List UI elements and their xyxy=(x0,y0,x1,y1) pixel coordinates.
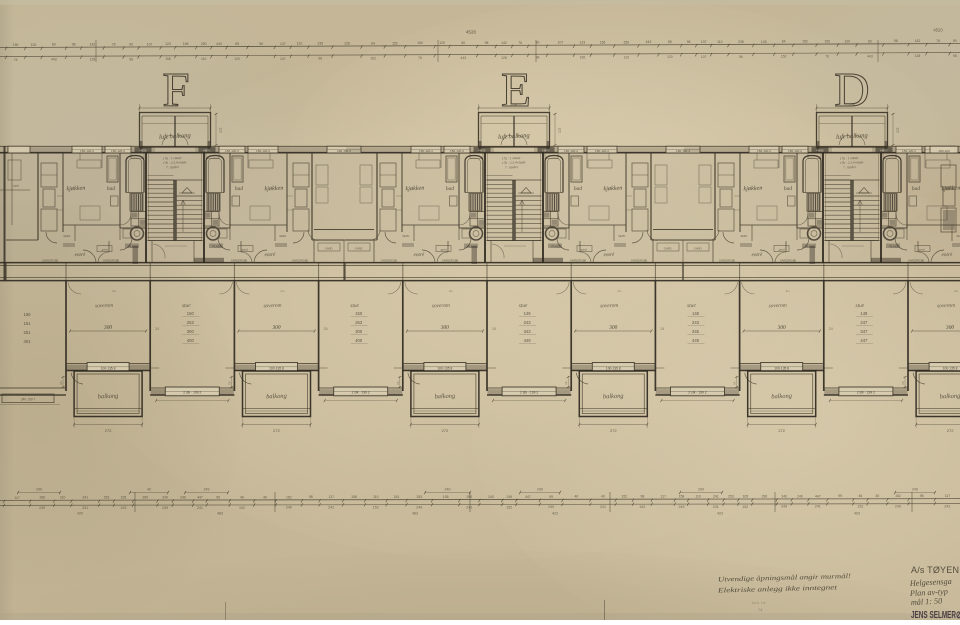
svg-text:24: 24 xyxy=(155,327,159,331)
svg-text:272: 272 xyxy=(105,428,112,433)
svg-text:240: 240 xyxy=(445,488,451,492)
svg-text:150·120 2: 150·120 2 xyxy=(564,149,578,153)
svg-text:240: 240 xyxy=(162,496,168,500)
svg-text:HEIS: HEIS xyxy=(478,149,485,153)
svg-text:120: 120 xyxy=(844,39,850,43)
svg-text:117: 117 xyxy=(14,496,20,500)
svg-text:210: 210 xyxy=(849,103,855,107)
svg-text:300: 300 xyxy=(777,325,786,331)
svg-text:soverom: soverom xyxy=(432,303,450,310)
svg-text:152: 152 xyxy=(506,505,512,509)
svg-text:GARDEROBE: GARDEROBE xyxy=(231,259,248,263)
svg-text:98: 98 xyxy=(72,43,76,47)
svg-text:290: 290 xyxy=(537,488,543,492)
svg-text:272: 272 xyxy=(442,428,449,433)
svg-text:253: 253 xyxy=(355,320,363,325)
svg-text:mål 1: 50: mål 1: 50 xyxy=(911,596,943,607)
svg-text:156: 156 xyxy=(580,56,586,60)
svg-text:110: 110 xyxy=(201,57,207,61)
svg-text:E: E xyxy=(501,62,531,117)
svg-text:GARD.: GARD. xyxy=(694,246,703,250)
svg-text:SERV.: SERV. xyxy=(740,234,748,238)
svg-text:150·120 2: 150·120 2 xyxy=(225,149,239,153)
svg-text:D: D xyxy=(834,62,869,117)
svg-text:117: 117 xyxy=(945,494,951,498)
svg-text:105: 105 xyxy=(443,495,449,499)
svg-text:250: 250 xyxy=(201,42,207,46)
svg-text:249: 249 xyxy=(204,488,210,492)
svg-text:2 stk · 199 2: 2 stk · 199 2 xyxy=(183,391,201,395)
svg-text:40: 40 xyxy=(876,494,880,498)
svg-text:120: 120 xyxy=(558,127,562,133)
svg-text:stue: stue xyxy=(855,303,864,309)
svg-text:152: 152 xyxy=(370,56,376,60)
svg-text:40: 40 xyxy=(147,488,151,492)
svg-text:243: 243 xyxy=(524,320,532,325)
svg-text:SERV.: SERV. xyxy=(618,234,626,238)
svg-text:om: om xyxy=(13,183,19,188)
svg-text:GARD.: GARD. xyxy=(664,246,673,250)
svg-text:249: 249 xyxy=(162,506,168,510)
svg-text:142: 142 xyxy=(90,43,96,47)
svg-text:60: 60 xyxy=(901,381,905,385)
svg-text:bad: bad xyxy=(912,186,921,192)
svg-text:76: 76 xyxy=(112,43,116,47)
svg-text:128: 128 xyxy=(761,40,767,44)
svg-text:kjøkken: kjøkken xyxy=(603,185,622,193)
svg-text:2 stk · 199 2: 2 stk · 199 2 xyxy=(688,391,706,395)
svg-text:98: 98 xyxy=(485,41,489,45)
svg-text:balkong: balkong xyxy=(771,393,793,401)
svg-text:137: 137 xyxy=(280,42,286,46)
svg-text:soverom: soverom xyxy=(600,303,618,310)
svg-text:GARDEROBE: GARDEROBE xyxy=(292,259,309,263)
svg-text:46: 46 xyxy=(240,495,244,499)
svg-text:158: 158 xyxy=(39,496,45,500)
svg-text:151: 151 xyxy=(24,321,32,326)
svg-text:98: 98 xyxy=(309,495,313,499)
svg-text:142: 142 xyxy=(501,41,507,45)
svg-text:240·199 7: 240·199 7 xyxy=(21,398,36,402)
svg-text:SERV.: SERV. xyxy=(956,234,960,238)
svg-text:stue: stue xyxy=(687,303,696,309)
svg-text:GARD.: GARD. xyxy=(325,246,334,250)
svg-text:272: 272 xyxy=(610,428,617,433)
svg-text:HEIS: HEIS xyxy=(816,149,823,153)
svg-text:150: 150 xyxy=(355,311,363,316)
svg-text:h.o.h. 1 m: h.o.h. 1 m xyxy=(752,601,766,605)
svg-text:76: 76 xyxy=(518,41,522,45)
svg-text:stue: stue xyxy=(350,303,359,309)
svg-text:401: 401 xyxy=(24,339,32,344)
svg-text:60: 60 xyxy=(227,381,231,385)
svg-text:balkong: balkong xyxy=(940,393,960,401)
svg-text:kjøkken: kjøkken xyxy=(66,185,85,193)
svg-text:120: 120 xyxy=(667,55,673,59)
svg-text:152: 152 xyxy=(621,495,627,499)
svg-text:443: 443 xyxy=(216,42,222,46)
svg-text:110: 110 xyxy=(373,495,379,499)
svg-text:gard.: gard. xyxy=(102,247,109,251)
svg-text:4520: 4520 xyxy=(466,30,477,35)
svg-text:128: 128 xyxy=(344,42,350,46)
svg-text:152: 152 xyxy=(373,506,379,510)
svg-text:210: 210 xyxy=(172,103,178,107)
svg-text:152: 152 xyxy=(121,506,127,510)
svg-text:gard.: gard. xyxy=(779,247,786,251)
svg-text:GARDEROBE: GARDEROBE xyxy=(103,259,120,263)
svg-text:100·135 8: 100·135 8 xyxy=(101,366,116,370)
svg-text:2 stk · 199 2: 2 stk · 199 2 xyxy=(352,391,370,395)
svg-text:241: 241 xyxy=(713,505,719,509)
svg-text:soverom: soverom xyxy=(263,303,281,310)
svg-text:98: 98 xyxy=(920,494,924,498)
svg-text:kjøkken: kjøkken xyxy=(743,185,762,193)
svg-text:60: 60 xyxy=(733,381,737,385)
svg-text:HEIS: HEIS xyxy=(542,149,549,153)
svg-text:158: 158 xyxy=(679,495,685,499)
svg-text:107: 107 xyxy=(558,41,564,45)
svg-text:107: 107 xyxy=(147,42,153,46)
svg-text:entré: entré xyxy=(942,252,954,258)
svg-text:241: 241 xyxy=(815,505,821,509)
svg-text:120: 120 xyxy=(439,41,445,45)
svg-text:150: 150 xyxy=(417,41,423,45)
svg-text:110: 110 xyxy=(297,42,303,46)
svg-text:4m: 4m xyxy=(954,289,959,293)
svg-text:PLASS: PLASS xyxy=(805,244,814,248)
svg-text:107: 107 xyxy=(701,55,707,59)
svg-text:240: 240 xyxy=(912,488,918,492)
svg-text:423: 423 xyxy=(552,512,558,516)
svg-text:GARDEROBE: GARDEROBE xyxy=(780,259,797,263)
svg-text:SERV.: SERV. xyxy=(279,234,287,238)
svg-text:105: 105 xyxy=(742,494,748,498)
svg-text:156: 156 xyxy=(165,57,171,61)
svg-text:98: 98 xyxy=(641,495,645,499)
svg-text:150·120 2: 150·120 2 xyxy=(595,149,609,153)
svg-text:150·120 2: 150·120 2 xyxy=(80,149,94,153)
svg-text:249: 249 xyxy=(180,496,186,500)
svg-text:142: 142 xyxy=(915,39,921,43)
svg-text:PLASS: PLASS xyxy=(889,244,898,248)
svg-text:300: 300 xyxy=(355,329,363,334)
svg-text:150·120 2: 150·120 2 xyxy=(111,149,125,153)
svg-text:JENS SELMER⊘A: JENS SELMER⊘A xyxy=(911,610,960,620)
svg-text:4m: 4m xyxy=(280,289,285,293)
svg-text:entré: entré xyxy=(752,252,764,258)
svg-text:128: 128 xyxy=(915,54,921,58)
svg-text:300: 300 xyxy=(271,325,280,331)
svg-text:HEIS: HEIS xyxy=(139,149,146,153)
svg-text:60: 60 xyxy=(59,381,63,385)
svg-text:423: 423 xyxy=(717,512,723,516)
svg-text:150·120 2: 150·120 2 xyxy=(450,149,464,153)
svg-text:290: 290 xyxy=(762,494,768,498)
svg-text:345: 345 xyxy=(692,329,700,334)
svg-text:290: 290 xyxy=(142,496,148,500)
svg-text:241: 241 xyxy=(394,495,400,499)
svg-text:96: 96 xyxy=(739,55,743,59)
svg-text:24: 24 xyxy=(660,327,664,331)
svg-text:98: 98 xyxy=(894,39,898,43)
svg-text:150: 150 xyxy=(824,40,830,44)
svg-text:96: 96 xyxy=(318,57,322,61)
svg-text:152: 152 xyxy=(742,505,748,509)
svg-text:150·120 2: 150·120 2 xyxy=(788,149,802,153)
svg-text:156: 156 xyxy=(183,42,189,46)
svg-text:99: 99 xyxy=(216,495,220,499)
svg-text:120: 120 xyxy=(234,57,240,61)
svg-text:120: 120 xyxy=(219,127,223,133)
svg-text:149: 149 xyxy=(860,311,868,316)
svg-text:4m: 4m xyxy=(786,289,791,293)
svg-text:249: 249 xyxy=(286,506,292,510)
svg-text:120: 120 xyxy=(31,43,37,47)
svg-text:483: 483 xyxy=(217,512,223,516)
svg-text:4m: 4m xyxy=(449,289,454,293)
svg-text:150·120 2: 150·120 2 xyxy=(256,149,270,153)
svg-text:entré: entré xyxy=(265,252,277,258)
svg-text:123: 123 xyxy=(165,42,171,46)
svg-text:98: 98 xyxy=(129,57,133,61)
svg-text:249: 249 xyxy=(781,505,787,509)
svg-text:447: 447 xyxy=(815,494,821,498)
svg-text:253: 253 xyxy=(104,496,110,500)
svg-text:85: 85 xyxy=(235,42,239,46)
svg-text:kjøkken: kjøkken xyxy=(405,185,424,193)
svg-text:149: 149 xyxy=(524,311,532,316)
svg-text:64: 64 xyxy=(782,40,786,44)
svg-text:100·135 8: 100·135 8 xyxy=(943,366,958,370)
svg-text:241: 241 xyxy=(197,506,203,510)
svg-text:2 stk · 199 2: 2 stk · 199 2 xyxy=(857,391,875,395)
svg-text:250: 250 xyxy=(623,40,629,44)
svg-text:balkong: balkong xyxy=(98,393,120,401)
svg-text:GARDEROBE: GARDEROBE xyxy=(42,259,59,263)
svg-text:152: 152 xyxy=(895,494,901,498)
svg-text:GARD.: GARD. xyxy=(355,246,364,250)
svg-text:347: 347 xyxy=(860,329,868,334)
svg-text:64: 64 xyxy=(371,41,375,45)
svg-text:253: 253 xyxy=(187,320,195,325)
svg-text:156: 156 xyxy=(600,40,606,44)
svg-text:100·135 8: 100·135 8 xyxy=(606,366,621,370)
svg-text:243: 243 xyxy=(692,320,700,325)
svg-text:128: 128 xyxy=(90,58,96,62)
svg-text:2 stk · 199 2: 2 stk · 199 2 xyxy=(520,391,538,395)
svg-text:241: 241 xyxy=(944,504,950,508)
svg-text:447: 447 xyxy=(525,495,531,499)
svg-text:SERV.: SERV. xyxy=(402,234,410,238)
svg-text:253: 253 xyxy=(416,495,422,499)
svg-text:soverom: soverom xyxy=(937,303,955,310)
svg-text:entré: entré xyxy=(75,252,87,258)
svg-text:90: 90 xyxy=(953,39,957,43)
svg-text:443: 443 xyxy=(460,56,466,60)
svg-text:24: 24 xyxy=(829,327,833,331)
svg-text:150: 150 xyxy=(13,43,19,47)
svg-text:241: 241 xyxy=(713,495,719,499)
svg-text:158: 158 xyxy=(351,495,357,499)
svg-text:24: 24 xyxy=(492,327,496,331)
svg-text:249: 249 xyxy=(39,506,45,510)
svg-text:241: 241 xyxy=(82,506,88,510)
svg-text:249: 249 xyxy=(506,495,512,499)
svg-text:stue: stue xyxy=(182,303,191,309)
svg-text:241: 241 xyxy=(82,496,88,500)
svg-text:150·120 2: 150·120 2 xyxy=(419,149,433,153)
svg-text:443: 443 xyxy=(51,58,57,62)
svg-text:120: 120 xyxy=(896,127,900,133)
svg-text:stue: stue xyxy=(519,303,528,309)
svg-text:bad: bad xyxy=(235,186,244,192)
svg-text:150·120 2: 150·120 2 xyxy=(902,149,916,153)
svg-text:150·120: 150·120 xyxy=(938,149,950,153)
svg-text:210: 210 xyxy=(511,103,517,107)
svg-text:107: 107 xyxy=(280,57,286,61)
svg-text:272: 272 xyxy=(273,428,280,433)
svg-text:60: 60 xyxy=(868,39,872,43)
svg-text:300: 300 xyxy=(187,329,195,334)
svg-text:4m: 4m xyxy=(112,289,117,293)
svg-text:99: 99 xyxy=(549,495,553,499)
svg-text:152: 152 xyxy=(781,55,787,59)
svg-text:7 : kjeller: 7 : kjeller xyxy=(843,165,857,169)
svg-text:60: 60 xyxy=(396,381,400,385)
svg-text:110: 110 xyxy=(717,40,723,44)
svg-text:152: 152 xyxy=(802,40,808,44)
svg-text:152: 152 xyxy=(286,495,292,499)
svg-text:GARDEROBE: GARDEROBE xyxy=(719,259,736,263)
svg-text:PLASS: PLASS xyxy=(551,244,560,248)
svg-text:447: 447 xyxy=(860,338,868,343)
svg-text:272: 272 xyxy=(778,428,785,433)
svg-text:420: 420 xyxy=(77,512,83,516)
svg-text:76: 76 xyxy=(14,58,18,62)
svg-text:kjøkken: kjøkken xyxy=(941,185,960,193)
svg-text:60: 60 xyxy=(564,381,568,385)
svg-text:PLASS: PLASS xyxy=(212,244,221,248)
svg-text:24: 24 xyxy=(324,327,328,331)
svg-text:HEIS: HEIS xyxy=(203,149,210,153)
svg-text:483: 483 xyxy=(412,512,418,516)
svg-text:123: 123 xyxy=(580,41,586,45)
svg-text:300: 300 xyxy=(440,325,449,331)
svg-text:76: 76 xyxy=(825,55,829,59)
svg-text:249: 249 xyxy=(895,505,901,509)
svg-text:235: 235 xyxy=(317,42,323,46)
svg-text:4520: 4520 xyxy=(933,28,943,33)
svg-text:249: 249 xyxy=(548,505,554,509)
svg-text:gard.: gard. xyxy=(581,247,588,251)
svg-text:GARDEROBE: GARDEROBE xyxy=(908,259,925,263)
svg-text:entré: entré xyxy=(604,252,616,258)
svg-text:105: 105 xyxy=(121,496,127,500)
svg-text:249: 249 xyxy=(416,505,422,509)
svg-text:balkong: balkong xyxy=(266,393,288,401)
svg-text:150·120 2: 150·120 2 xyxy=(757,149,771,153)
svg-text:bad: bad xyxy=(574,186,583,192)
svg-text:SERV.: SERV. xyxy=(63,234,71,238)
svg-text:40: 40 xyxy=(601,495,605,499)
svg-text:128: 128 xyxy=(501,56,507,60)
svg-text:soverom: soverom xyxy=(769,303,787,310)
svg-text:kjøkken: kjøkken xyxy=(264,185,283,193)
svg-text:40: 40 xyxy=(263,495,267,499)
svg-text:447: 447 xyxy=(197,495,203,499)
svg-text:entré: entré xyxy=(414,252,426,258)
svg-text:152: 152 xyxy=(392,41,398,45)
svg-text:137: 137 xyxy=(701,40,707,44)
svg-text:343: 343 xyxy=(524,329,532,334)
svg-text:110: 110 xyxy=(60,496,66,500)
svg-text:300: 300 xyxy=(945,325,954,331)
svg-text:100·135 8: 100·135 8 xyxy=(774,366,789,370)
svg-text:bad: bad xyxy=(784,186,793,192)
svg-text:gard.: gard. xyxy=(919,247,926,251)
svg-text:152: 152 xyxy=(639,505,645,509)
svg-text:7/4: 7/4 xyxy=(758,608,763,612)
svg-text:soverom: soverom xyxy=(95,303,113,310)
svg-text:241: 241 xyxy=(328,506,334,510)
svg-text:247: 247 xyxy=(860,320,868,325)
svg-text:290: 290 xyxy=(36,488,42,492)
svg-text:bad: bad xyxy=(107,186,116,192)
svg-text:249: 249 xyxy=(797,494,803,498)
svg-text:150: 150 xyxy=(187,311,195,316)
svg-text:85: 85 xyxy=(668,40,672,44)
svg-text:90: 90 xyxy=(129,42,133,46)
svg-text:balkong: balkong xyxy=(434,393,456,401)
svg-text:96: 96 xyxy=(687,40,691,44)
svg-text:bad: bad xyxy=(446,186,455,192)
svg-text:152: 152 xyxy=(239,506,245,510)
svg-text:240: 240 xyxy=(781,494,787,498)
svg-text:PLASS: PLASS xyxy=(467,244,476,248)
svg-text:443: 443 xyxy=(867,54,873,58)
svg-text:272: 272 xyxy=(947,428,954,433)
svg-text:7 : kjeller: 7 : kjeller xyxy=(505,165,519,169)
svg-text:46: 46 xyxy=(575,495,579,499)
svg-text:400: 400 xyxy=(355,338,363,343)
svg-text:PLASS: PLASS xyxy=(128,244,137,248)
svg-text:443: 443 xyxy=(646,40,652,44)
svg-text:60: 60 xyxy=(461,41,465,45)
svg-text:400: 400 xyxy=(187,338,195,343)
svg-text:F: F xyxy=(162,62,189,117)
svg-text:GARDEROBE: GARDEROBE xyxy=(570,259,587,263)
svg-text:117: 117 xyxy=(661,495,667,499)
svg-text:HEIS: HEIS xyxy=(880,149,887,153)
svg-text:152: 152 xyxy=(857,505,863,509)
svg-text:balkong: balkong xyxy=(603,393,625,401)
svg-text:4m: 4m xyxy=(617,289,622,293)
svg-text:150: 150 xyxy=(24,312,32,317)
svg-text:300: 300 xyxy=(103,325,112,331)
svg-text:235: 235 xyxy=(738,40,744,44)
svg-text:76: 76 xyxy=(936,39,940,43)
svg-text:110: 110 xyxy=(624,55,630,59)
svg-text:46: 46 xyxy=(859,494,863,498)
svg-text:403: 403 xyxy=(854,512,860,516)
svg-text:148: 148 xyxy=(692,311,700,316)
svg-text:449: 449 xyxy=(692,338,700,343)
svg-text:241: 241 xyxy=(600,505,606,509)
svg-text:300: 300 xyxy=(608,325,617,331)
svg-text:253: 253 xyxy=(728,494,734,498)
svg-text:290: 290 xyxy=(698,488,704,492)
